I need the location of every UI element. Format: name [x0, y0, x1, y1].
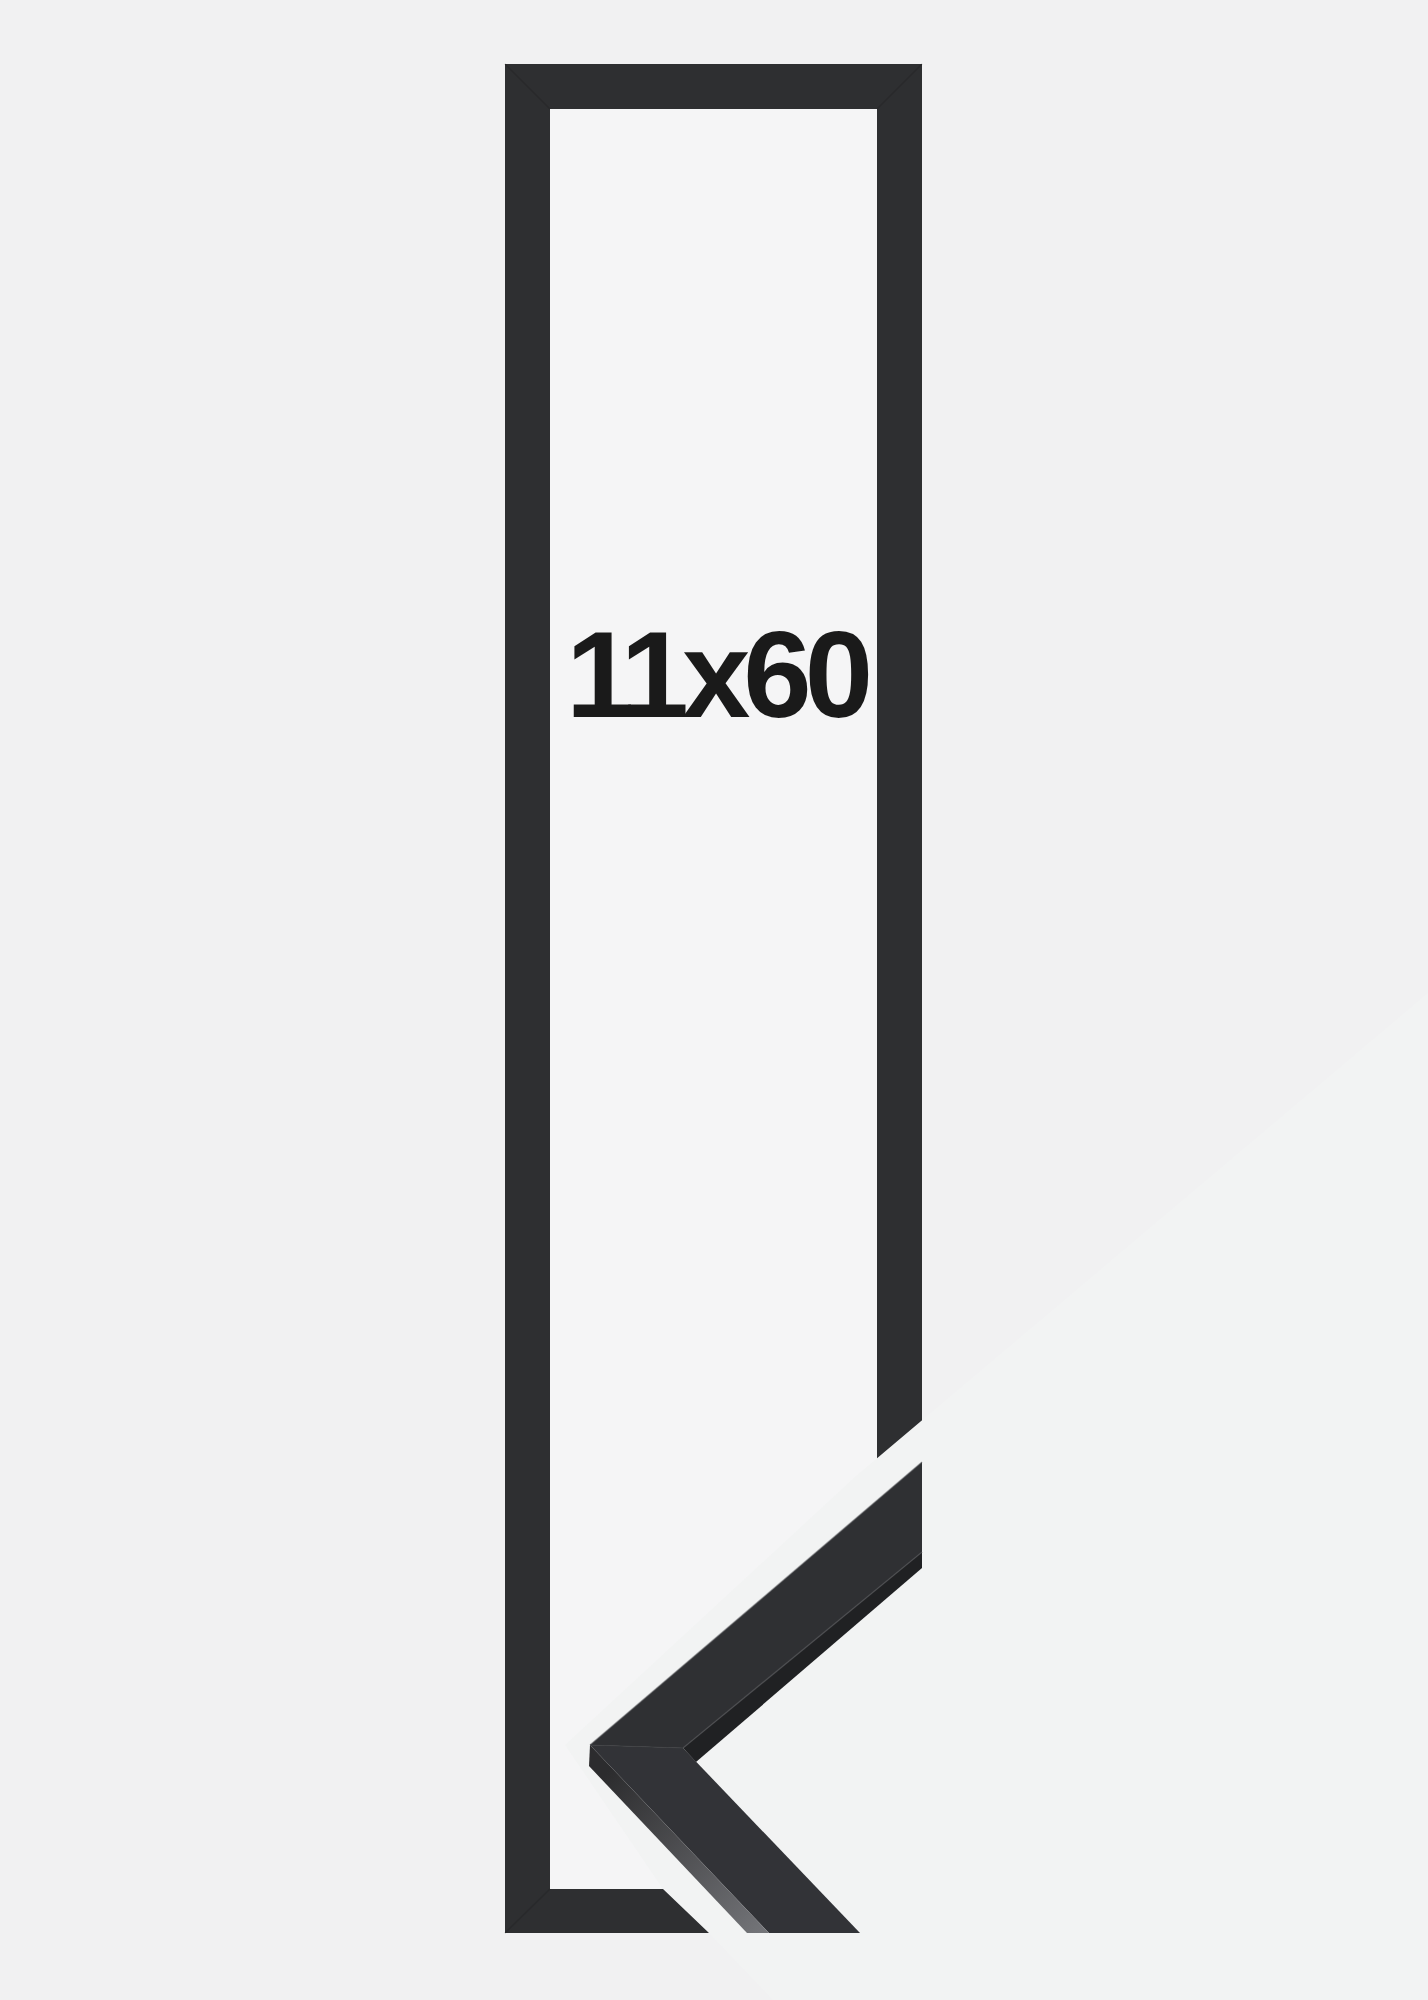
- size-label: 11x60: [566, 606, 869, 743]
- frame-product-illustration: 11x60: [0, 0, 1428, 2000]
- product-image: 11x60: [0, 0, 1428, 2000]
